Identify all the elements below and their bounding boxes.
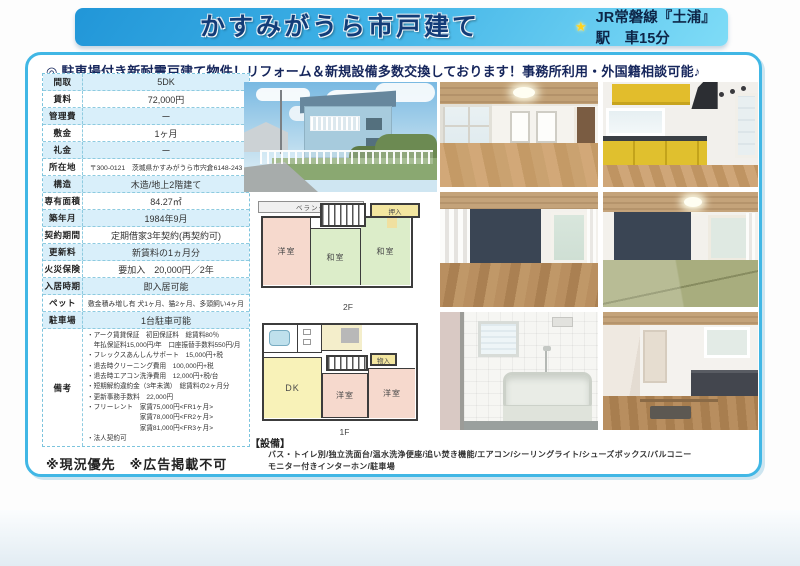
photo-bathroom — [440, 312, 598, 430]
bathroom-window — [478, 321, 519, 356]
curtains — [587, 209, 596, 267]
closet-door — [643, 330, 666, 383]
remarks-line: 年払保証料15,000円/年 口座振替手数料550円/月 — [87, 341, 241, 351]
wood-floor — [603, 165, 758, 187]
equipment-heading: 【設備】 — [250, 435, 290, 450]
room-1f-western-1: 洋室 — [322, 373, 368, 418]
photo-bedroom — [440, 192, 598, 307]
spec-label: 築年月 — [43, 210, 83, 226]
floorplan-2f: 洋室 和室 和室 押入 ベランダ 2F — [258, 201, 438, 313]
storage-1f: 物入 — [370, 353, 397, 366]
spec-label: 管理費 — [43, 108, 83, 124]
spec-label: 間取 — [43, 74, 83, 90]
equipment-list-line1: バス・トイレ別/独立洗面台/温水洗浄便座/追い焚き機能/エアコン/シーリングライ… — [268, 449, 692, 460]
bathtub-apron — [503, 406, 591, 421]
remarks-line: 家賃81,000円<FR3ヶ月> — [87, 424, 213, 434]
star-icon: ★ — [575, 19, 587, 35]
entrance-window — [704, 327, 751, 358]
spec-row-更新料: 更新料新賃料の1ヵ月分 — [43, 244, 249, 261]
spec-value: 〒300-0121 茨城県かすみがうら市宍倉6148-243 — [83, 159, 249, 175]
spec-label: 入居時期 — [43, 278, 83, 294]
spec-value: 1台駐車可能 — [83, 312, 249, 328]
remarks-line: 家賃78,000円<FR2ヶ月> — [87, 413, 213, 423]
remarks-line: ・退去時エアコン洗浄費用 12,000円+税/台 — [87, 372, 218, 382]
curtains — [440, 209, 470, 269]
house-balcony — [310, 116, 360, 131]
ceiling-light — [684, 197, 702, 207]
doorway-opening — [574, 107, 595, 147]
room-2f-japanese-1: 和室 — [311, 228, 361, 285]
remarks-line: ・フリーレント 家賃75,000円<FR1ヶ月> — [87, 403, 213, 413]
remarks-line: ・退去時クリーニング費用 100,000円+税 — [87, 362, 214, 372]
tatami-window — [708, 215, 750, 261]
room-2f-western: 洋室 — [263, 218, 311, 285]
entrance-mat — [650, 406, 692, 419]
spec-label: 専有面積 — [43, 193, 83, 209]
spec-row-火災保険: 火災保険要加入 20,000円／2年 — [43, 261, 249, 278]
washroom-fixtures — [303, 329, 311, 335]
spec-row-構造: 構造木造/地上2階建て — [43, 176, 249, 193]
title-banner: かすみがうら市戸建て ★ JR常磐線『土浦』駅 車15分 — [75, 8, 728, 46]
spec-value: 即入居可能 — [83, 278, 249, 294]
navy-accent-wall — [614, 212, 692, 260]
spec-value: ー — [83, 108, 249, 124]
bathtub-icon — [269, 330, 290, 346]
photo-exterior — [244, 82, 437, 192]
spec-row-remarks: 備考 ・アーク賃貸保証 初回保証料 総賃料80％ 年払保証料15,000円/年 … — [43, 329, 249, 446]
entrance-mat — [341, 328, 359, 343]
remarks-line: ・短期解約違約金（3年未満） 総賃料の2ヶ月分 — [87, 382, 230, 392]
remarks-line: ・更新事務手数料 22,000円 — [87, 393, 173, 403]
condition-note: ※現況優先 ※広告掲載不可 — [46, 454, 227, 473]
spec-label: ペット — [43, 295, 83, 311]
room-2f-japanese-2: 和室 — [361, 218, 410, 285]
interior-door — [510, 111, 531, 143]
bathroom-doorframe — [440, 312, 464, 430]
spec-value: 1984年9月 — [83, 210, 249, 226]
spec-value: 5DK — [83, 74, 249, 90]
wood-ceiling — [440, 192, 598, 209]
spec-label: 更新料 — [43, 244, 83, 260]
remarks-label: 備考 — [43, 329, 83, 446]
bathtub — [503, 372, 591, 407]
closet-2f: 押入 — [370, 203, 420, 218]
bedroom-window — [551, 212, 587, 264]
equipment-list-line2: モニター付きインターホン/駐車場 — [268, 461, 395, 472]
photo-living-room — [440, 82, 598, 187]
interior-door — [536, 111, 557, 143]
vent-grille — [552, 317, 573, 328]
property-flyer-page: かすみがうら市戸建て ★ JR常磐線『土浦』駅 車15分 ◎ 駐車場付き新耐震戸… — [0, 0, 800, 566]
utility-pole — [280, 90, 282, 154]
spec-row-専有面積: 専有面積84.27㎡ — [43, 193, 249, 210]
spec-row-ペット: ペット敷金積み増し有 犬1ヶ月、猫2ヶ月、多頭飼い4ヶ月 — [43, 295, 249, 312]
white-fence — [260, 150, 433, 164]
remarks-value: ・アーク賃貸保証 初回保証料 総賃料80％ 年払保証料15,000円/年 口座振… — [83, 329, 249, 446]
kitchen-window — [606, 108, 665, 135]
spec-row-管理費: 管理費ー — [43, 108, 249, 125]
spot-lights — [741, 86, 746, 91]
upper-cabinets — [612, 84, 690, 105]
spec-value: 木造/地上2階建て — [83, 176, 249, 192]
spec-row-駐車場: 駐車場1台駐車可能 — [43, 312, 249, 329]
spec-label: 火災保険 — [43, 261, 83, 277]
station-access: ★ JR常磐線『土浦』駅 車15分 — [575, 8, 728, 46]
bathroom-1f — [264, 325, 298, 353]
spec-row-間取: 間取5DK — [43, 74, 249, 91]
spec-label: 礼金 — [43, 142, 83, 158]
station-access-text: JR常磐線『土浦』駅 車15分 — [596, 6, 728, 48]
spec-label: 駐車場 — [43, 312, 83, 328]
spec-label: 所在地 — [43, 159, 83, 175]
spec-row-礼金: 礼金ー — [43, 142, 249, 159]
spec-label: 契約期間 — [43, 227, 83, 243]
spec-value: 敷金積み増し有 犬1ヶ月、猫2ヶ月、多頭飼い4ヶ月 — [83, 295, 249, 311]
house-window — [366, 118, 382, 130]
spec-value: 定期借家3年契約(再契約可) — [83, 227, 249, 243]
spec-value: 84.27㎡ — [83, 193, 249, 209]
stairs-1f — [326, 355, 368, 371]
spec-value: 要加入 20,000円／2年 — [83, 261, 249, 277]
curtains — [746, 213, 755, 264]
spec-row-所在地: 所在地〒300-0121 茨城県かすみがうら市宍倉6148-243 — [43, 159, 249, 176]
glass-door — [735, 93, 758, 158]
spec-row-敷金: 敷金1ヶ月 — [43, 125, 249, 142]
photo-kitchen — [603, 82, 758, 187]
property-spec-table: 間取5DK賃料72,000円管理費ー敷金1ヶ月礼金ー所在地〒300-0121 茨… — [42, 73, 250, 447]
page-bottom-tint — [0, 510, 800, 566]
wood-floor — [440, 143, 598, 187]
range-hood — [691, 82, 717, 109]
stairs-2f — [320, 203, 366, 227]
wood-ceiling — [603, 312, 758, 325]
wood-ceiling — [603, 192, 758, 212]
floorplan-2f-label: 2F — [258, 302, 438, 312]
washroom-1f — [298, 325, 322, 353]
spec-row-入居時期: 入居時期即入居可能 — [43, 278, 249, 295]
spec-label: 賃料 — [43, 91, 83, 107]
spec-row-築年月: 築年月1984年9月 — [43, 210, 249, 227]
spec-value: ー — [83, 142, 249, 158]
entrance-step — [640, 399, 718, 402]
ceiling-light — [513, 87, 535, 98]
floorplan-1f-outline: 物入 DK 洋室 洋室 — [262, 323, 418, 421]
photo-tatami-room — [603, 192, 758, 307]
photo-entrance — [603, 312, 758, 430]
floorplan-1f: 物入 DK 洋室 洋室 1F — [262, 321, 427, 439]
spec-value: 72,000円 — [83, 91, 249, 107]
lower-cabinets — [603, 141, 707, 165]
room-1f-western-2: 洋室 — [368, 368, 415, 418]
shower-head — [543, 346, 551, 351]
remarks-line: ・フレックスあんしんサポート 15,000円+税 — [87, 351, 223, 361]
spec-label: 敷金 — [43, 125, 83, 141]
tatami-mats — [603, 260, 758, 307]
spec-table-body: 間取5DK賃料72,000円管理費ー敷金1ヶ月礼金ー所在地〒300-0121 茨… — [43, 74, 249, 329]
spec-value: 1ヶ月 — [83, 125, 249, 141]
spec-value: 新賃料の1ヵ月分 — [83, 244, 249, 260]
room-1f-dk: DK — [264, 357, 322, 418]
entrance-1f — [322, 325, 362, 351]
spec-row-契約期間: 契約期間定期借家3年契約(再契約可) — [43, 227, 249, 244]
remarks-line: ・法人契約可 — [87, 434, 127, 444]
navy-accent-wall — [470, 209, 541, 263]
main-content-box: ◎ 駐車場付き新耐震戸建て物件！リフォーム＆新規設備多数交換しております！事務所… — [25, 52, 762, 477]
page-title: かすみがうら市戸建て — [160, 8, 520, 46]
spec-label: 構造 — [43, 176, 83, 192]
spec-row-賃料: 賃料72,000円 — [43, 91, 249, 108]
bathroom-floor — [464, 421, 598, 430]
wood-floor — [440, 263, 598, 307]
remarks-line: ・アーク賃貸保証 初回保証料 総賃料80％ — [87, 331, 219, 341]
